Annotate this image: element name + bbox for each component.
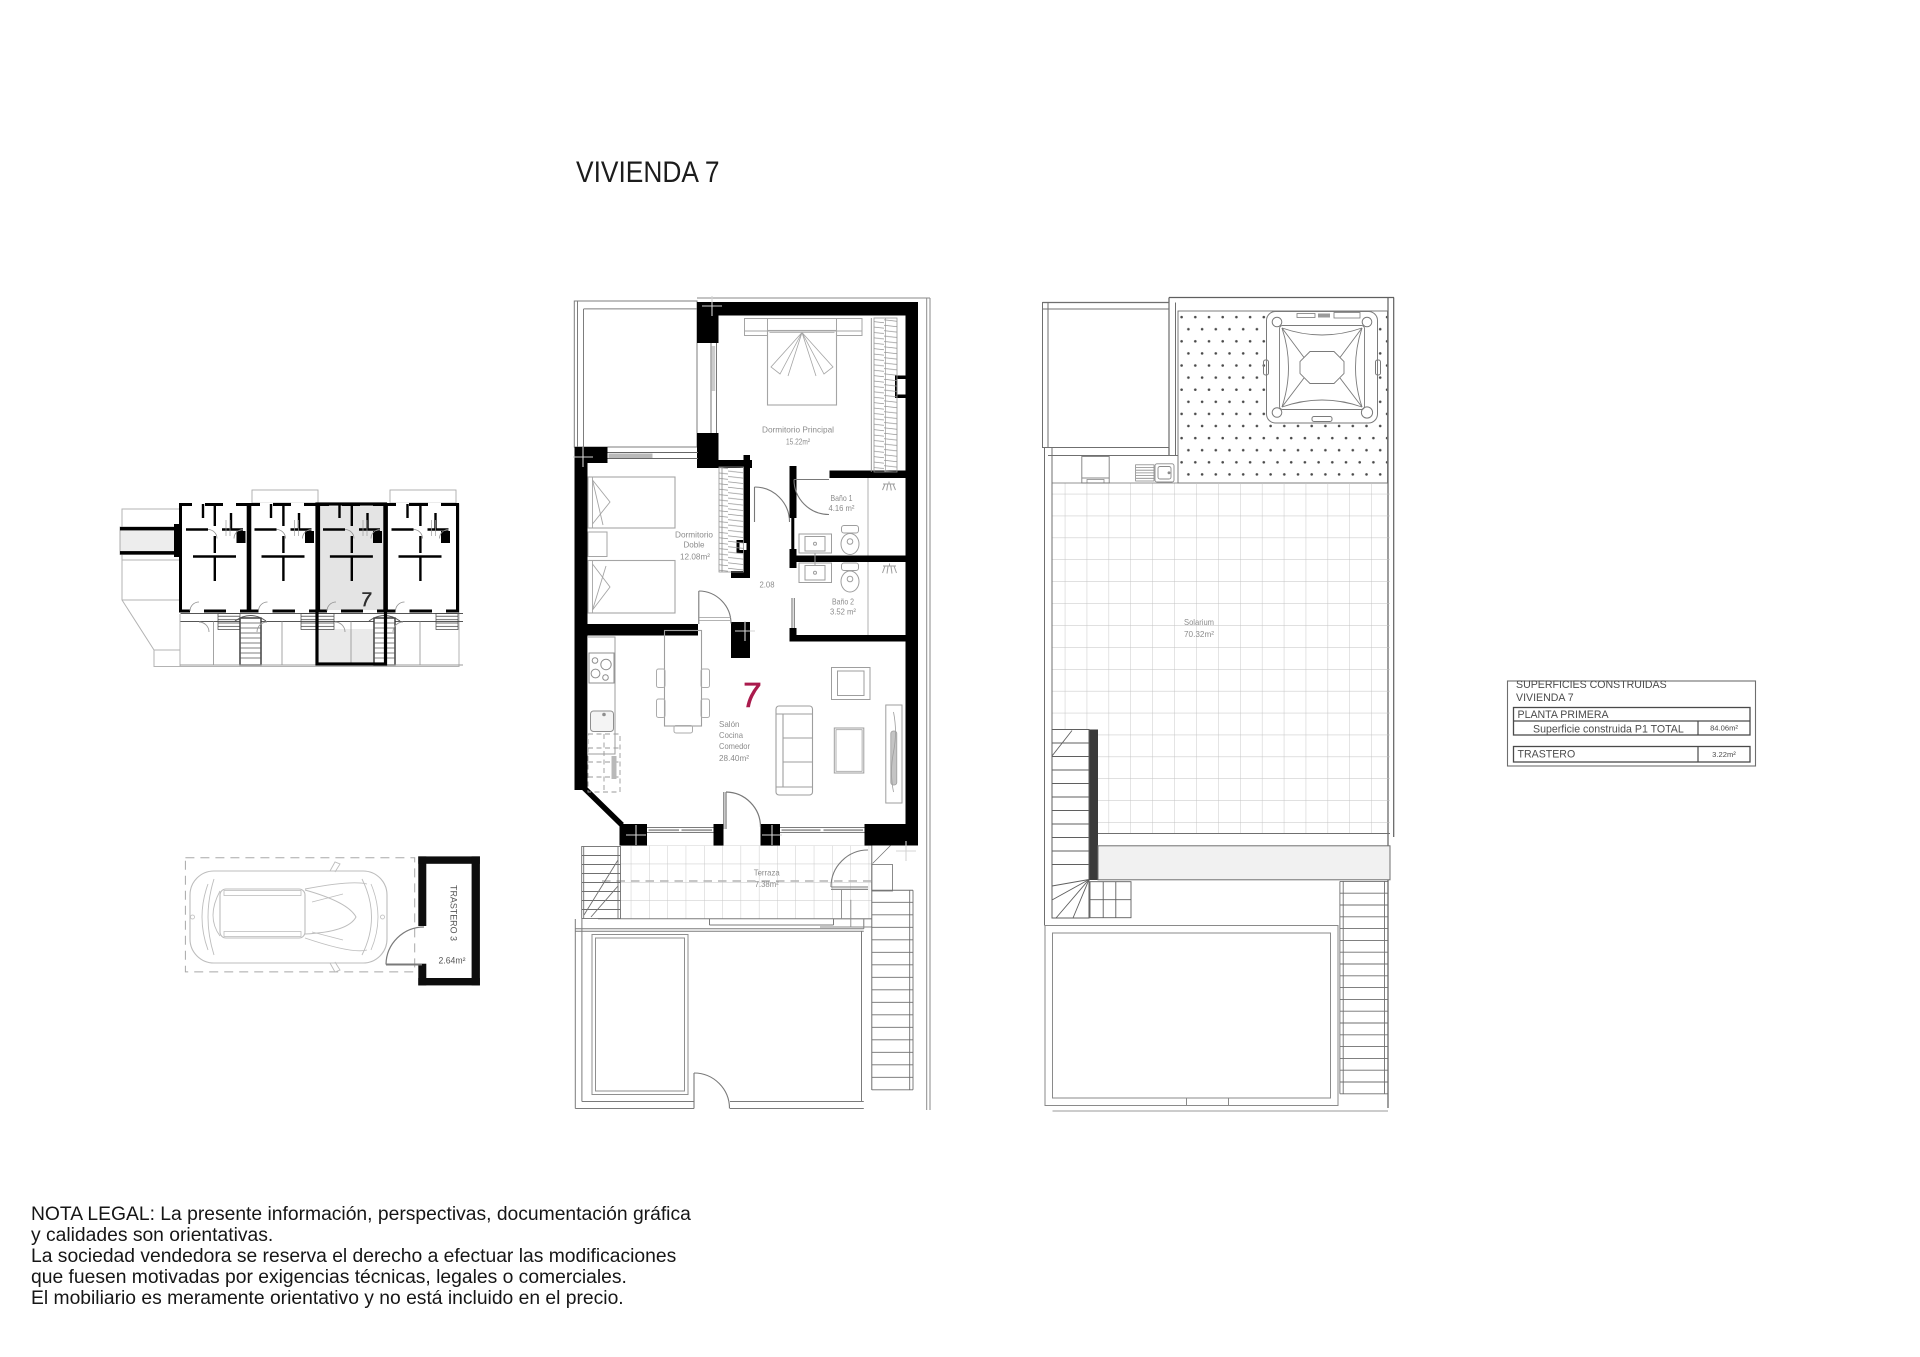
svg-text:El mobiliario es meramente ori: El mobiliario es meramente orientativo y…	[31, 1288, 624, 1309]
svg-text:TRASTERO 3: TRASTERO 3	[449, 885, 459, 941]
svg-text:2.64m²: 2.64m²	[439, 956, 466, 966]
svg-text:4.16 m²: 4.16 m²	[829, 503, 855, 513]
svg-text:3.22m²: 3.22m²	[1712, 750, 1736, 759]
svg-text:SUPERFICIES CONSTRUIDAS: SUPERFICIES CONSTRUIDAS	[1516, 679, 1667, 691]
svg-text:Comedor: Comedor	[719, 741, 750, 751]
svg-text:2.08: 2.08	[760, 580, 775, 590]
svg-text:La sociedad vendedora se reser: La sociedad vendedora se reserva el dere…	[31, 1246, 676, 1267]
svg-text:Baño 1: Baño 1	[831, 493, 853, 503]
svg-text:3.52 m²: 3.52 m²	[830, 607, 856, 617]
svg-text:Superficie construida P1 TOTAL: Superficie construida P1 TOTAL	[1533, 724, 1684, 736]
svg-text:84.06m²: 84.06m²	[1710, 724, 1738, 733]
svg-text:Dormitorio: Dormitorio	[675, 530, 713, 540]
svg-text:y calidades son orientativas.: y calidades son orientativas.	[31, 1225, 273, 1246]
svg-text:15.22m²: 15.22m²	[786, 437, 810, 447]
svg-text:28.40m²: 28.40m²	[719, 753, 749, 763]
svg-text:que fuesen motivadas por exige: que fuesen motivadas por exigencias técn…	[31, 1267, 627, 1288]
svg-text:7.38m²: 7.38m²	[755, 879, 779, 889]
svg-text:VIVIENDA 7: VIVIENDA 7	[1516, 692, 1574, 704]
svg-text:70.32m²: 70.32m²	[1184, 629, 1214, 639]
svg-text:NOTA LEGAL: La presente inform: NOTA LEGAL: La presente información, per…	[31, 1204, 691, 1225]
svg-text:TRASTERO: TRASTERO	[1518, 749, 1576, 761]
svg-text:VIVIENDA 7: VIVIENDA 7	[576, 156, 720, 189]
svg-text:Solarium: Solarium	[1184, 617, 1214, 627]
svg-text:PLANTA PRIMERA: PLANTA PRIMERA	[1518, 709, 1610, 721]
svg-text:Dormitorio Principal: Dormitorio Principal	[762, 425, 834, 435]
svg-text:12.08m²: 12.08m²	[680, 552, 710, 562]
svg-text:Doble: Doble	[684, 540, 705, 550]
svg-text:Salón: Salón	[719, 719, 740, 729]
svg-text:Baño 2: Baño 2	[832, 597, 854, 607]
svg-text:Cocina: Cocina	[719, 730, 743, 740]
svg-text:Terraza: Terraza	[754, 868, 780, 878]
